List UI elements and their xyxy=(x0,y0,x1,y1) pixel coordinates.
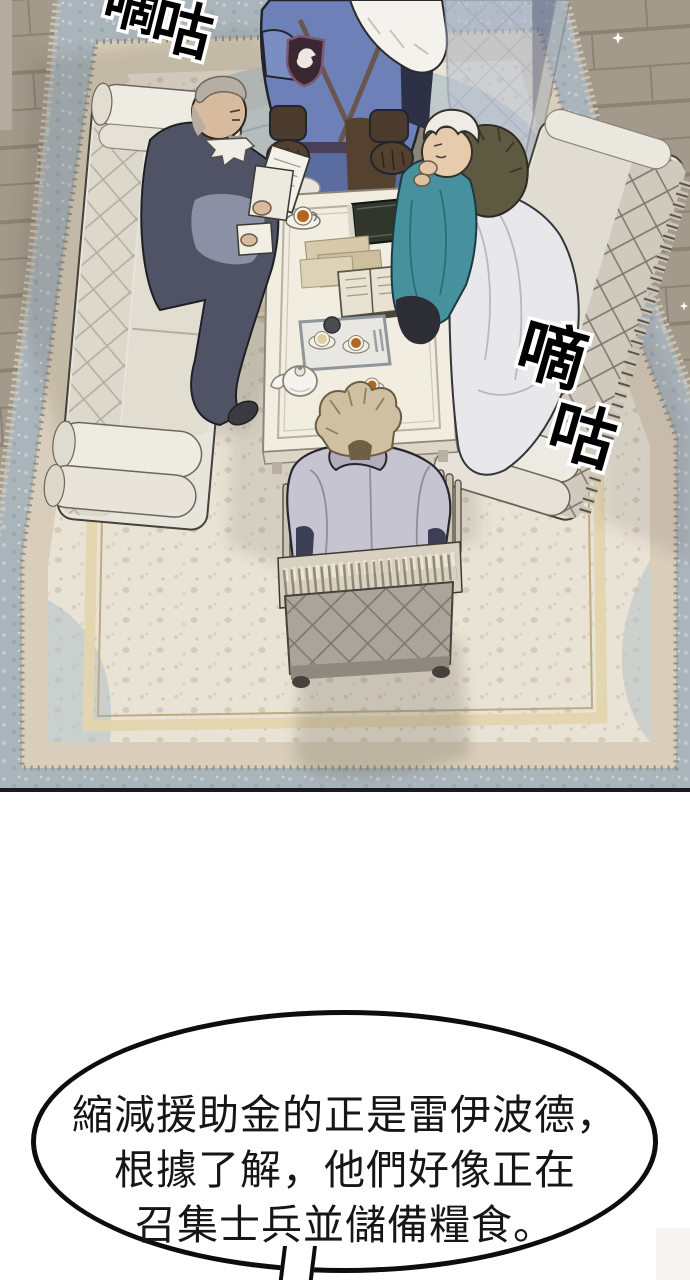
speech-bubble-text: 縮減援助金的正是雷伊波德， 根據了解，他們好像正在 召集士兵並儲備糧食。 xyxy=(70,1088,620,1253)
bubble-line-2: 根據了解，他們好像正在 xyxy=(70,1143,620,1198)
bubble-line-3: 召集士兵並儲備糧食。 xyxy=(70,1198,620,1253)
comic-page: 嘀 咕 嘀 咕 縮減援助金的正是雷伊波德， 根據了解，他們好像正在 召集士兵並儲… xyxy=(0,0,690,1280)
comic-panel: 嘀 咕 嘀 咕 xyxy=(0,0,690,792)
armchair xyxy=(278,542,462,688)
corner-smudge xyxy=(656,1228,690,1280)
gutter-whitespace xyxy=(0,792,690,1012)
tea-tray xyxy=(300,316,390,370)
bubble-line-1: 縮減援助金的正是雷伊波德， xyxy=(70,1088,620,1143)
